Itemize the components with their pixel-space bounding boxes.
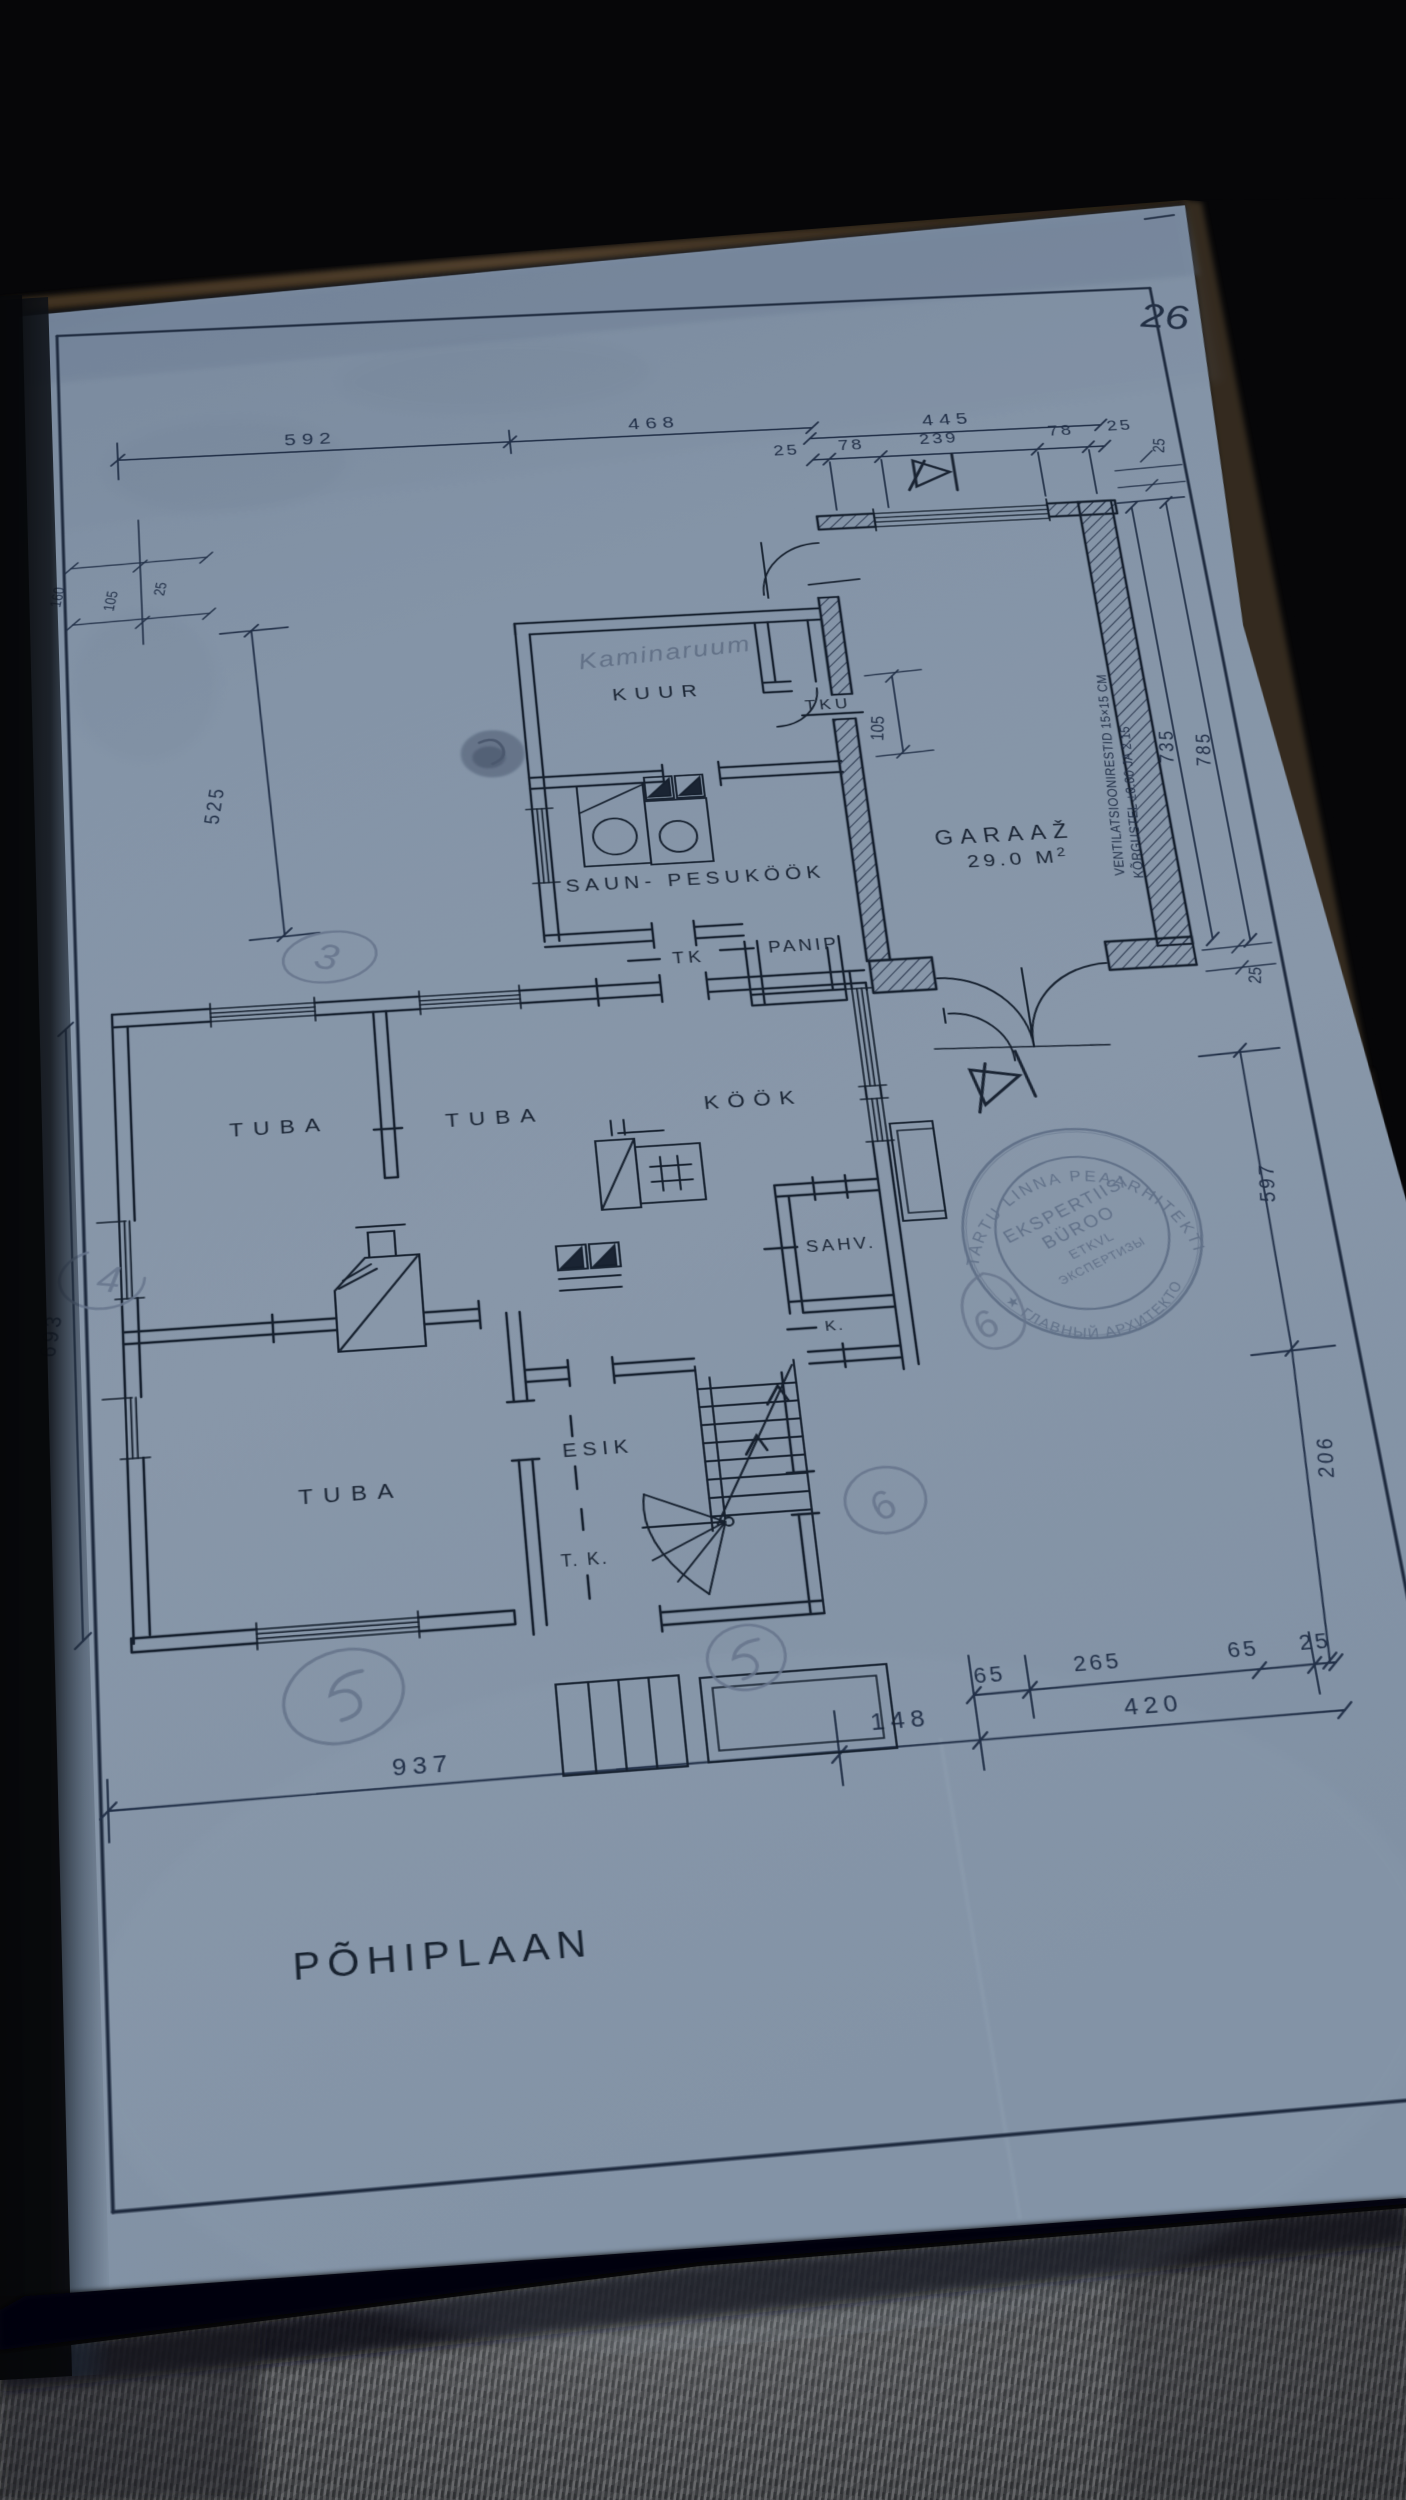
svg-text:78: 78: [1046, 422, 1075, 439]
svg-text:TK: TK: [671, 948, 706, 968]
svg-text:25: 25: [1150, 438, 1169, 454]
svg-text:592: 592: [284, 429, 338, 449]
svg-text:468: 468: [627, 413, 681, 433]
svg-text:26: 26: [1139, 297, 1190, 337]
svg-text:445: 445: [921, 409, 975, 429]
svg-text:65: 65: [972, 1662, 1008, 1688]
svg-text:420: 420: [1122, 1689, 1185, 1720]
svg-text:148: 148: [869, 1704, 932, 1735]
svg-text:25: 25: [1105, 417, 1134, 434]
svg-text:105: 105: [868, 715, 889, 741]
svg-text:937: 937: [391, 1749, 454, 1781]
svg-text:25: 25: [1246, 966, 1266, 984]
svg-text:239: 239: [918, 430, 960, 448]
svg-text:TKU: TKU: [804, 696, 852, 714]
svg-text:25: 25: [1297, 1629, 1333, 1655]
svg-text:206: 206: [1312, 1435, 1339, 1479]
svg-text:K.: K.: [824, 1316, 846, 1335]
svg-text:597: 597: [1254, 1162, 1280, 1203]
svg-text:T. K.: T. K.: [560, 1549, 610, 1571]
svg-text:65: 65: [1225, 1637, 1261, 1663]
svg-text:78: 78: [837, 436, 866, 453]
svg-text:265: 265: [1072, 1649, 1124, 1676]
svg-text:25: 25: [772, 442, 801, 459]
svg-text:25: 25: [150, 581, 171, 596]
svg-text:785: 785: [1192, 731, 1216, 767]
